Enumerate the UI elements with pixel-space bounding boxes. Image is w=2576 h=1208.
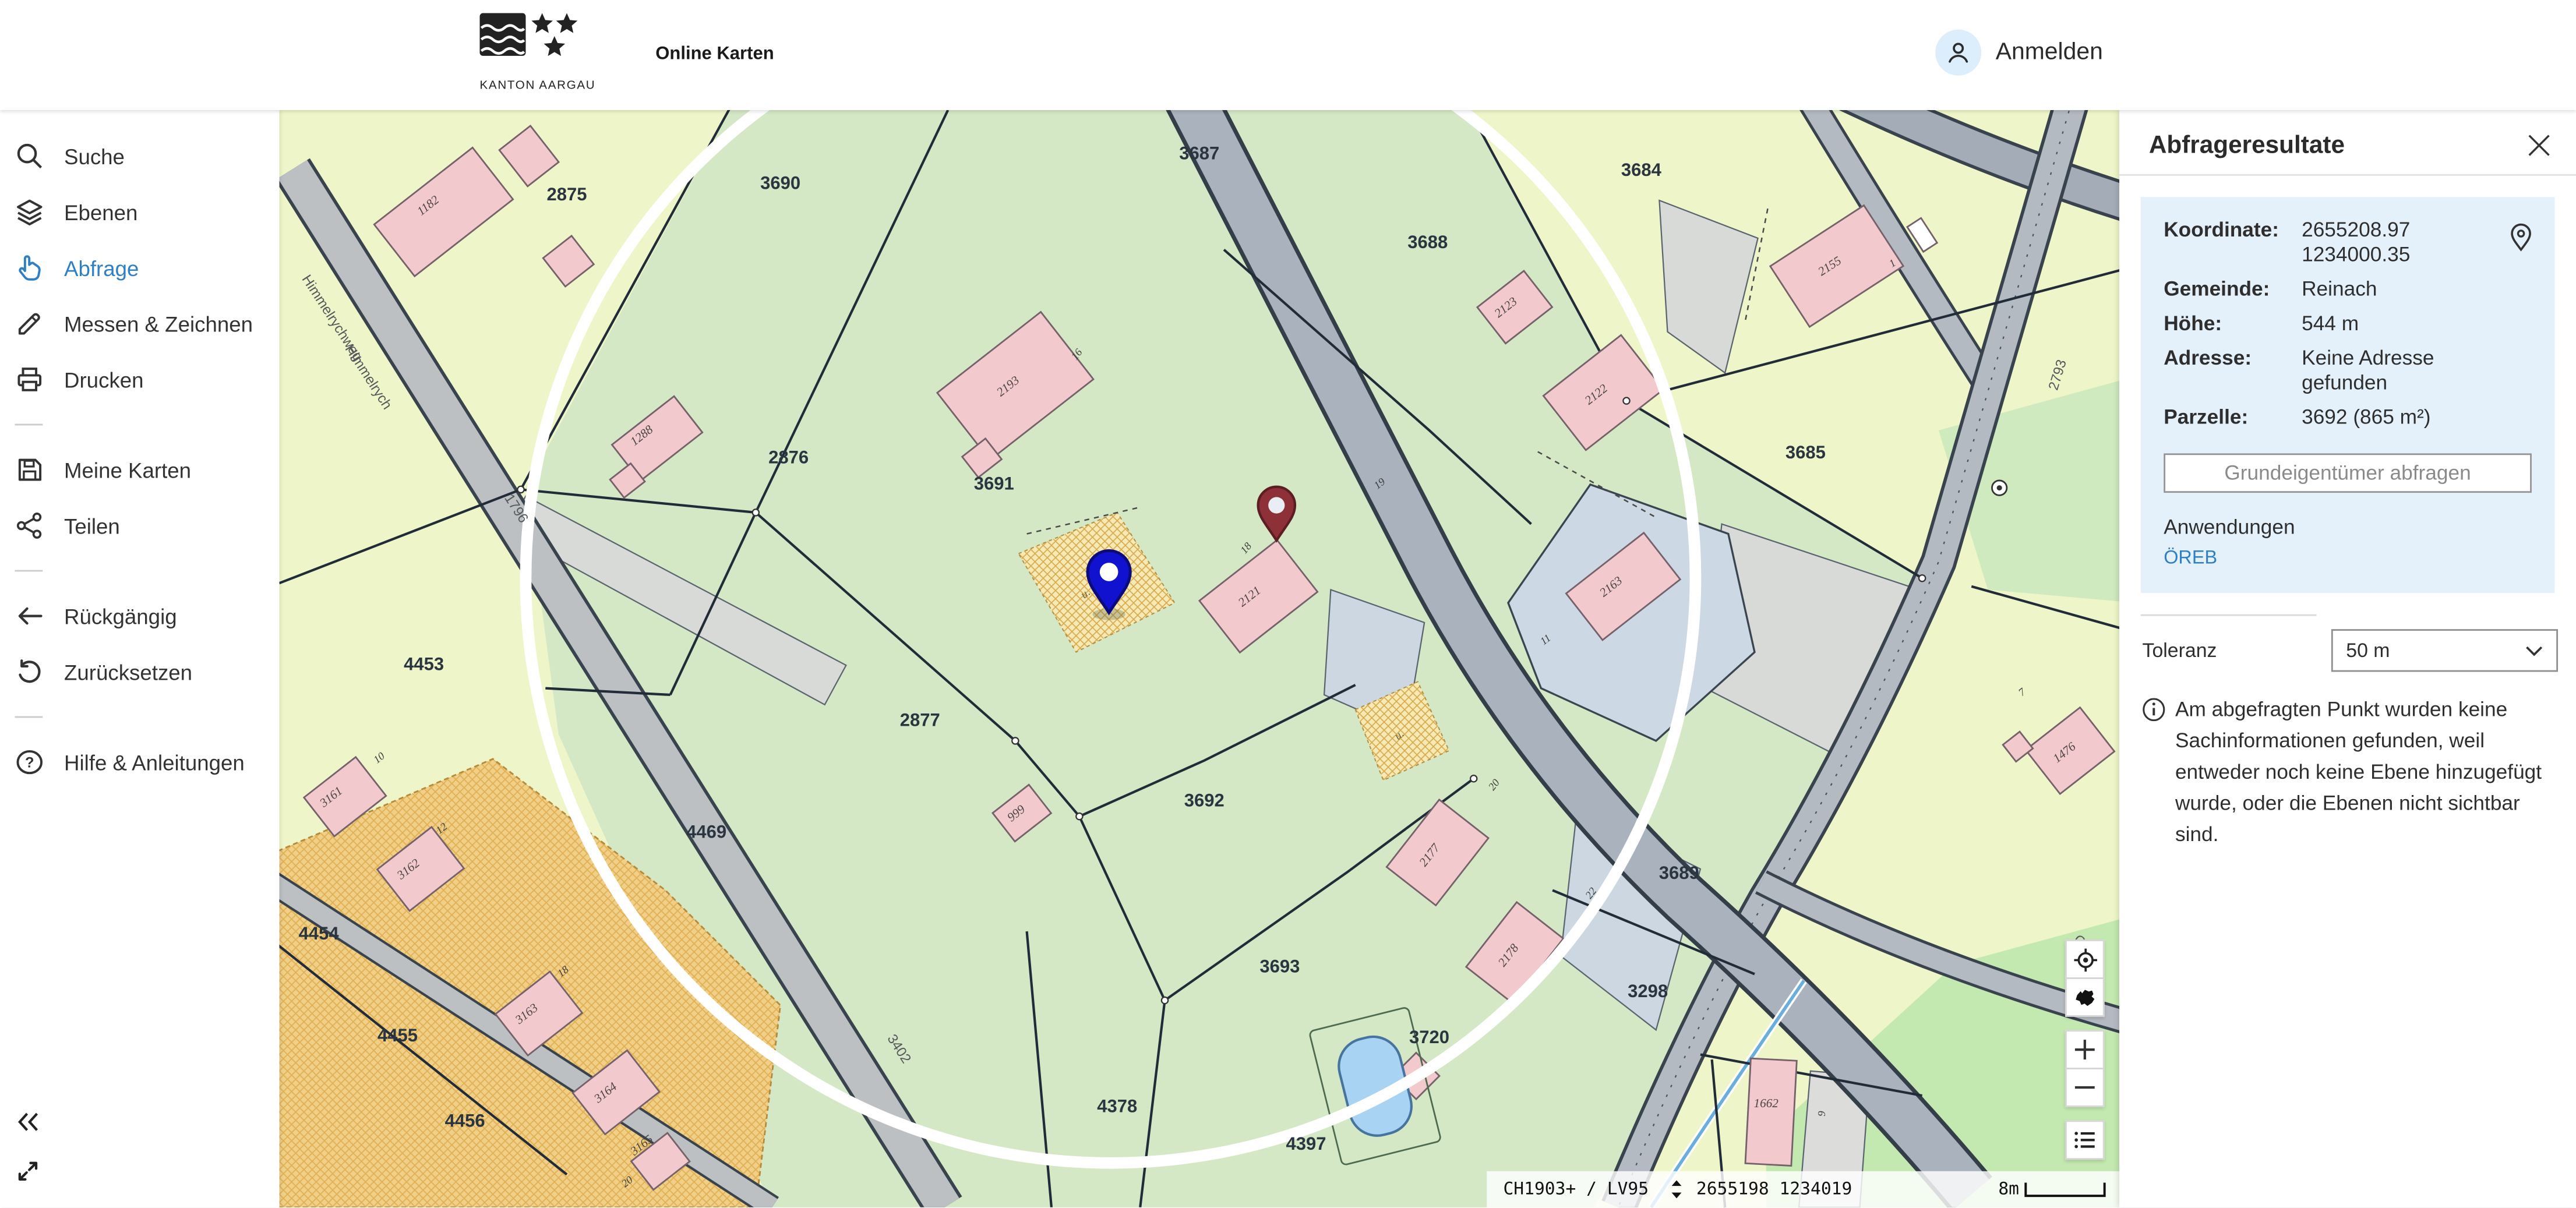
sidebar-item-drucken[interactable]: Drucken <box>0 352 279 408</box>
sidebar-item-abfrage[interactable]: Abfrage <box>0 240 279 296</box>
map-controls-locate-group <box>2065 939 2105 1017</box>
aargau-logo-icon <box>479 10 614 76</box>
arrow-left-icon <box>15 601 44 631</box>
parcel-number-label: 4378 <box>1097 1096 1137 1116</box>
sidebar-item-label: Drucken <box>64 367 144 391</box>
hoehe-value: 544 m <box>2302 312 2532 337</box>
building-number-label: 1662 <box>1754 1096 1779 1110</box>
page-title: Online Karten <box>655 44 774 64</box>
chevrons-left-icon[interactable] <box>13 1107 43 1137</box>
close-icon <box>2526 133 2551 157</box>
kanton-aargau-logo[interactable]: KANTON AARGAU <box>479 10 627 92</box>
login-button[interactable]: Anmelden <box>1935 30 2102 76</box>
map-controls-legend-group <box>2065 1120 2105 1160</box>
reset-icon <box>15 657 44 687</box>
sidebar-item-ebenen[interactable]: Ebenen <box>0 184 279 240</box>
house-number-label: 9 <box>1816 1111 1827 1117</box>
scale-label: 8m <box>1998 1179 2019 1199</box>
map-canvas[interactable]: 2875369036873688368428763691287736923693… <box>279 110 2119 1207</box>
share-icon <box>15 511 44 541</box>
panel-title: Abfrageresultate <box>2149 132 2345 160</box>
parcel-number-label: 3687 <box>1179 143 1219 164</box>
locate-icon <box>2073 947 2097 972</box>
query-owner-button[interactable]: Grundeigentümer abfragen <box>2164 453 2532 493</box>
zoom-out-button[interactable] <box>2065 1069 2105 1107</box>
applications-title: Anwendungen <box>2164 516 2532 539</box>
scale-bar <box>2024 1181 2106 1198</box>
parcel-number-label: 2876 <box>768 447 809 467</box>
sidebar-item-label: Teilen <box>64 513 120 538</box>
list-icon <box>2073 1128 2096 1151</box>
sidebar-divider <box>15 570 43 572</box>
parcel-number-label: 3684 <box>1621 160 1662 180</box>
query-result-card: Koordinate: 2655208.97 1234000.35 Gemein… <box>2141 197 2555 593</box>
sidebar: Suche Ebenen Abfrage Messen & Zeichnen D… <box>0 110 279 1207</box>
sidebar-item-meine-karten[interactable]: Meine Karten <box>0 442 279 498</box>
sidebar-item-label: Ebenen <box>64 200 137 224</box>
panel-divider <box>2119 174 2576 176</box>
sidebar-item-teilen[interactable]: Teilen <box>0 498 279 554</box>
user-avatar <box>1935 30 1981 76</box>
sidebar-item-label: Suche <box>64 144 125 168</box>
map-pin-icon[interactable] <box>2510 224 2532 252</box>
crs-label[interactable]: CH1903+ / LV95 <box>1503 1179 1649 1199</box>
header: KANTON AARGAU Online Karten Anmelden <box>0 0 2576 110</box>
sidebar-item-label: Abfrage <box>64 256 139 280</box>
parcel-number-label: 3720 <box>1409 1027 1449 1047</box>
layers-icon <box>15 197 44 227</box>
sidebar-divider <box>15 424 43 426</box>
adresse-value: Keine Adresse gefunden <box>2302 347 2482 396</box>
canton-extent-button[interactable] <box>2065 979 2105 1017</box>
map-statusbar: CH1903+ / LV95 2655198 1234019 8m <box>1487 1171 2119 1207</box>
cursor-coordinates: 2655198 1234019 <box>1696 1179 1852 1199</box>
gemeinde-value: Reinach <box>2302 278 2532 302</box>
sidebar-item-suche[interactable]: Suche <box>0 128 279 184</box>
tolerance-label: Toleranz <box>2143 639 2217 662</box>
close-panel-button[interactable] <box>2524 130 2555 161</box>
sidebar-item-messen-zeichnen[interactable]: Messen & Zeichnen <box>0 296 279 352</box>
sidebar-item-label: Hilfe & Anleitungen <box>64 750 245 774</box>
coordinate-value: 2655208.97 1234000.35 <box>2302 218 2487 268</box>
legend-button[interactable] <box>2065 1120 2105 1160</box>
brand-name: KANTON AARGAU <box>479 77 627 92</box>
hand-pointer-icon <box>15 253 44 282</box>
map-controls-zoom-group <box>2065 1030 2105 1107</box>
chevron-down-icon <box>2525 645 2543 656</box>
help-icon: ? <box>15 747 44 777</box>
info-icon <box>2143 698 2165 721</box>
canton-aargau-icon <box>2073 985 2097 1009</box>
parcel-number-label: 4456 <box>445 1111 485 1131</box>
coordinate-label: Koordinate: <box>2164 218 2302 268</box>
parcel-number-label: 3689 <box>1659 863 1699 883</box>
plus-icon <box>2073 1038 2096 1061</box>
expand-icon[interactable] <box>13 1156 43 1186</box>
parzelle-label: Parzelle: <box>2164 406 2302 430</box>
tolerance-select[interactable]: 50 m <box>2331 629 2558 672</box>
gemeinde-label: Gemeinde: <box>2164 278 2302 302</box>
parcel-number-label: 3688 <box>1407 232 1448 252</box>
parcel-number-label: 4455 <box>377 1025 418 1045</box>
parcel-number-label: 4397 <box>1286 1133 1326 1154</box>
sidebar-item-label: Zurücksetzen <box>64 659 192 684</box>
parcel-number-label: 2875 <box>546 184 587 204</box>
crs-switch-icon[interactable] <box>1668 1179 1683 1199</box>
query-results-panel: Abfrageresultate Koordinate: 2655208.97 … <box>2119 110 2576 1207</box>
parcel-number-label: 4454 <box>299 923 340 944</box>
login-label: Anmelden <box>1996 40 2103 66</box>
tolerance-value: 50 m <box>2346 639 2390 662</box>
parcel-number-label: 3298 <box>1628 981 1668 1001</box>
pencil-icon <box>15 309 44 338</box>
sidebar-item-label: Rückgängig <box>64 603 177 628</box>
minus-icon <box>2073 1076 2096 1098</box>
sidebar-item-rueckgaengig[interactable]: Rückgängig <box>0 588 279 644</box>
map-survey-point <box>1992 481 2006 495</box>
parcel-number-label: 3692 <box>1184 790 1225 811</box>
parcel-number-label: 2877 <box>900 710 940 730</box>
parcel-number-label: 3691 <box>974 473 1014 493</box>
parcel-number-label: 3690 <box>760 172 800 193</box>
sidebar-item-label: Meine Karten <box>64 457 191 482</box>
parcel-number-label: 3693 <box>1259 956 1300 977</box>
svg-text:?: ? <box>25 755 34 771</box>
sidebar-item-zuruecksetzen[interactable]: Zurücksetzen <box>0 644 279 700</box>
printer-icon <box>15 365 44 394</box>
save-icon <box>15 455 44 485</box>
info-message: Am abgefragten Punkt wurden keine Sachin… <box>2119 672 2576 850</box>
zoom-in-button[interactable] <box>2065 1030 2105 1069</box>
online-karten-app: KANTON AARGAU Online Karten Anmelden Suc… <box>0 0 2576 1207</box>
parcel-number-label: 4469 <box>686 821 726 842</box>
sidebar-divider <box>15 716 43 718</box>
parzelle-value: 3692 (865 m²) <box>2302 406 2532 430</box>
person-icon <box>1945 40 1971 66</box>
search-icon <box>15 142 44 171</box>
hoehe-label: Höhe: <box>2164 312 2302 337</box>
parcel-number-label: 3685 <box>1785 442 1826 462</box>
sidebar-item-label: Messen & Zeichnen <box>64 311 253 335</box>
parcel-number-label: 4453 <box>404 654 444 674</box>
adresse-label: Adresse: <box>2164 347 2302 396</box>
oereb-link[interactable]: ÖREB <box>2164 549 2217 568</box>
sidebar-item-hilfe[interactable]: ? Hilfe & Anleitungen <box>0 734 279 790</box>
locate-button[interactable] <box>2065 939 2105 979</box>
